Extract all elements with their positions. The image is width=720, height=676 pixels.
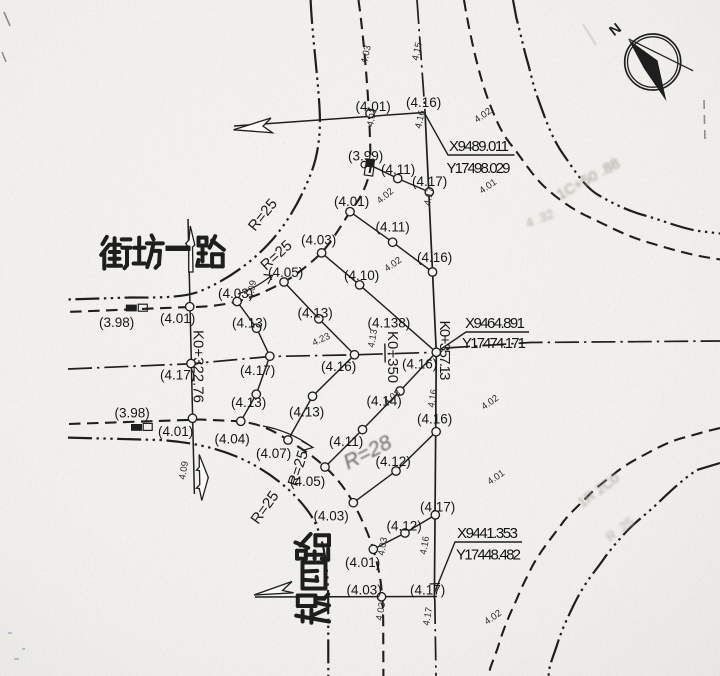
svg-text:(4.12): (4.12)	[387, 519, 422, 534]
svg-text:K0+350: K0+350	[384, 331, 401, 383]
svg-text:(4.13): (4.13)	[231, 395, 266, 410]
svg-text:Y17448.482: Y17448.482	[456, 547, 521, 564]
svg-text:(3.99): (3.99)	[348, 149, 383, 164]
svg-text:(4.01): (4.01)	[160, 311, 195, 326]
svg-text:(4.16): (4.16)	[402, 357, 437, 372]
svg-text:(4.138): (4.138)	[368, 316, 411, 331]
svg-text:(4.13): (4.13)	[298, 306, 333, 321]
svg-text:X9489.011: X9489.011	[449, 138, 509, 155]
svg-text:(3.98): (3.98)	[99, 315, 134, 330]
svg-text:(4.13): (4.13)	[232, 316, 267, 331]
svg-text:(4.03): (4.03)	[347, 583, 382, 598]
svg-text:(3.98): (3.98)	[115, 406, 150, 421]
svg-text:(4.11): (4.11)	[381, 162, 415, 177]
svg-text:(4.16): (4.16)	[321, 359, 356, 374]
svg-text:(4.16): (4.16)	[417, 250, 452, 265]
svg-text:(4.17): (4.17)	[160, 368, 195, 383]
svg-text:(4.01): (4.01)	[345, 555, 380, 570]
svg-text:(4.10): (4.10)	[344, 268, 379, 283]
svg-text:(4.03): (4.03)	[301, 233, 336, 248]
svg-text:(4.01): (4.01)	[158, 424, 193, 439]
svg-text:(4.17): (4.17)	[412, 174, 447, 189]
svg-text:(4.17): (4.17)	[240, 363, 275, 378]
svg-text:(4.03): (4.03)	[314, 509, 349, 524]
svg-text:(4.16): (4.16)	[417, 412, 452, 427]
svg-text:(4.16): (4.16)	[406, 95, 441, 110]
svg-text:(4.17): (4.17)	[410, 583, 445, 598]
svg-text:(4.07): (4.07)	[256, 446, 291, 461]
svg-text:(4.01): (4.01)	[334, 194, 369, 209]
svg-text:(4.11): (4.11)	[376, 220, 410, 235]
svg-text:(4.17): (4.17)	[420, 500, 455, 515]
svg-text:(4.13): (4.13)	[289, 405, 324, 420]
svg-text:(4.04): (4.04)	[215, 432, 250, 447]
svg-text:X9441.353: X9441.353	[457, 525, 518, 542]
svg-text:Y17498.029: Y17498.029	[447, 160, 511, 177]
svg-text:Y17474.171: Y17474.171	[462, 335, 526, 352]
svg-text:X9464.891: X9464.891	[465, 315, 525, 332]
